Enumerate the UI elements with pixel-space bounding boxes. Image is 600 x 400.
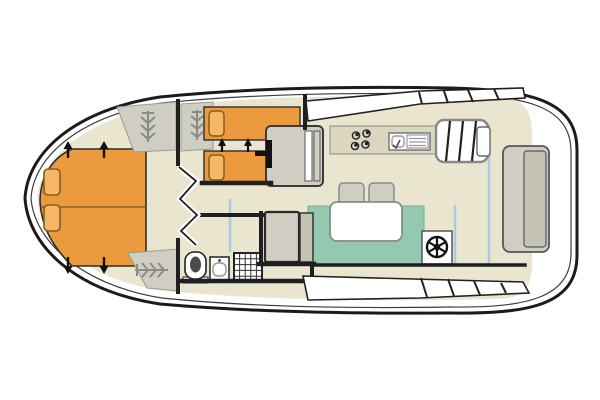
pillow xyxy=(44,169,60,195)
helm-console xyxy=(422,231,452,264)
floor-plan-canvas xyxy=(0,0,600,400)
boat-floor-plan xyxy=(0,0,600,400)
cabinet-with-handle xyxy=(255,126,323,186)
side-locker xyxy=(477,127,490,156)
pillow xyxy=(209,155,224,180)
galley-worktop xyxy=(330,126,436,154)
shower-tray-icon xyxy=(234,253,262,282)
washbasin-icon xyxy=(210,257,229,280)
dining-table xyxy=(330,202,402,241)
sideboard xyxy=(265,212,313,262)
pillow xyxy=(44,205,60,231)
cabinet-handle xyxy=(266,140,272,168)
stern-bench xyxy=(503,146,549,252)
sink-drainer-icon xyxy=(389,133,430,150)
stool xyxy=(339,183,364,204)
toilet-icon xyxy=(183,252,208,283)
steering-wheel-icon xyxy=(427,237,447,257)
pillow xyxy=(209,111,224,136)
stool xyxy=(369,183,394,204)
